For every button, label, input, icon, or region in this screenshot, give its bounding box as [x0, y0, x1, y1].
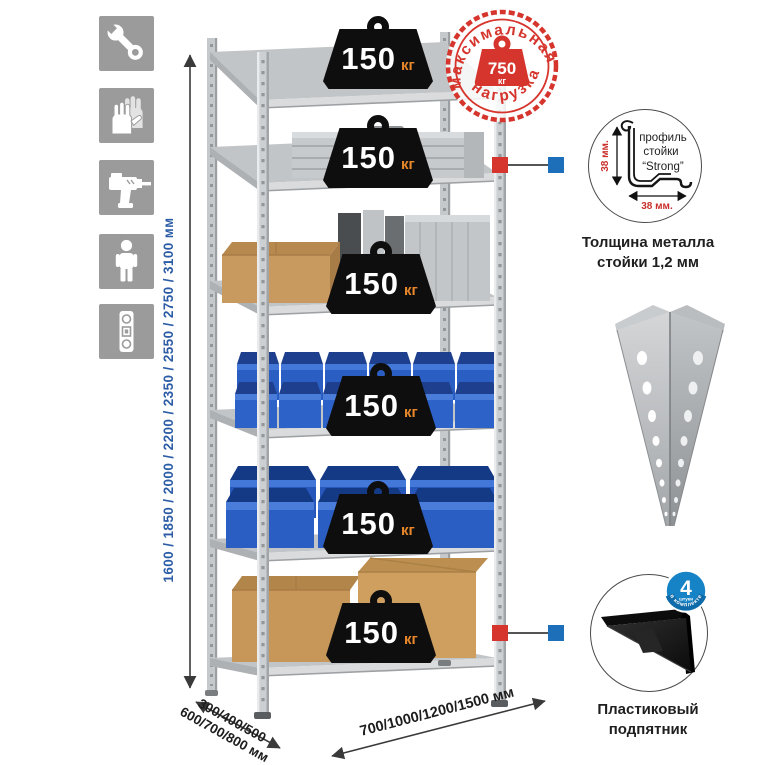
- foot-caption: Пластиковый подпятник: [560, 700, 736, 741]
- foot-connector: [492, 625, 564, 641]
- profile-caption: Толщина металла стойки 1,2 мм: [560, 233, 736, 274]
- profile-dim-horizontal: 38 мм.: [641, 201, 673, 212]
- corner-post-image: [595, 298, 745, 533]
- foot-caption-line1: Пластиковый: [560, 700, 736, 720]
- profile-label-1: профиль: [639, 132, 687, 144]
- profile-label-2: стойки: [643, 146, 678, 158]
- height-dimension-label: 1600 / 1850 / 2000 / 2200 / 2350 / 2550 …: [161, 217, 176, 582]
- profile-dim-vertical: 38 мм.: [600, 140, 611, 172]
- profile-caption-line1: Толщина металла: [560, 233, 736, 253]
- profile-connector: [492, 157, 564, 173]
- profile-label-3: “Strong”: [642, 161, 684, 173]
- profile-caption-line2: стойки 1,2 мм: [560, 253, 736, 273]
- width-dimension-label: 700/1000/1200/1500 мм: [358, 685, 515, 740]
- foot-caption-line2: подпятник: [560, 720, 736, 740]
- included-count-badge: 4 штуки в комплекте: [663, 568, 709, 614]
- plastic-foot-drawing: [601, 609, 695, 674]
- connector-red-square: [492, 625, 508, 641]
- included-small-label: штуки: [679, 597, 693, 602]
- connector-blue-square: [548, 157, 564, 173]
- connector-red-square: [492, 157, 508, 173]
- connector-blue-square: [548, 625, 564, 641]
- profile-detail-circle: 38 мм. 38 мм. профиль стойки “Strong”: [588, 109, 702, 223]
- infographic-canvas: максимальная нагрузка 750 кг 150кг 150кг…: [0, 0, 765, 765]
